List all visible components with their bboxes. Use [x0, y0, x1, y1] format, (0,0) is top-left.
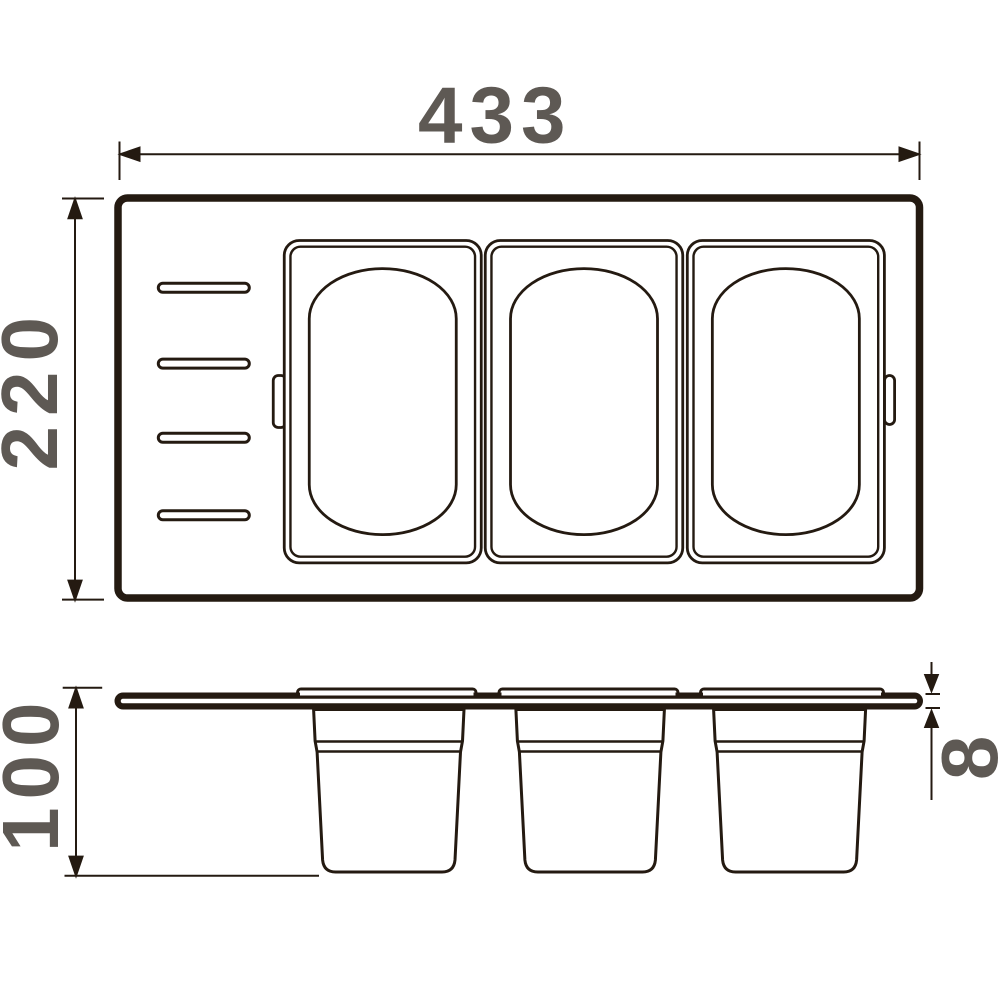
svg-text:8: 8 [925, 731, 1000, 781]
svg-text:220: 220 [0, 307, 74, 470]
svg-text:433: 433 [418, 71, 572, 160]
svg-text:100: 100 [0, 694, 75, 851]
